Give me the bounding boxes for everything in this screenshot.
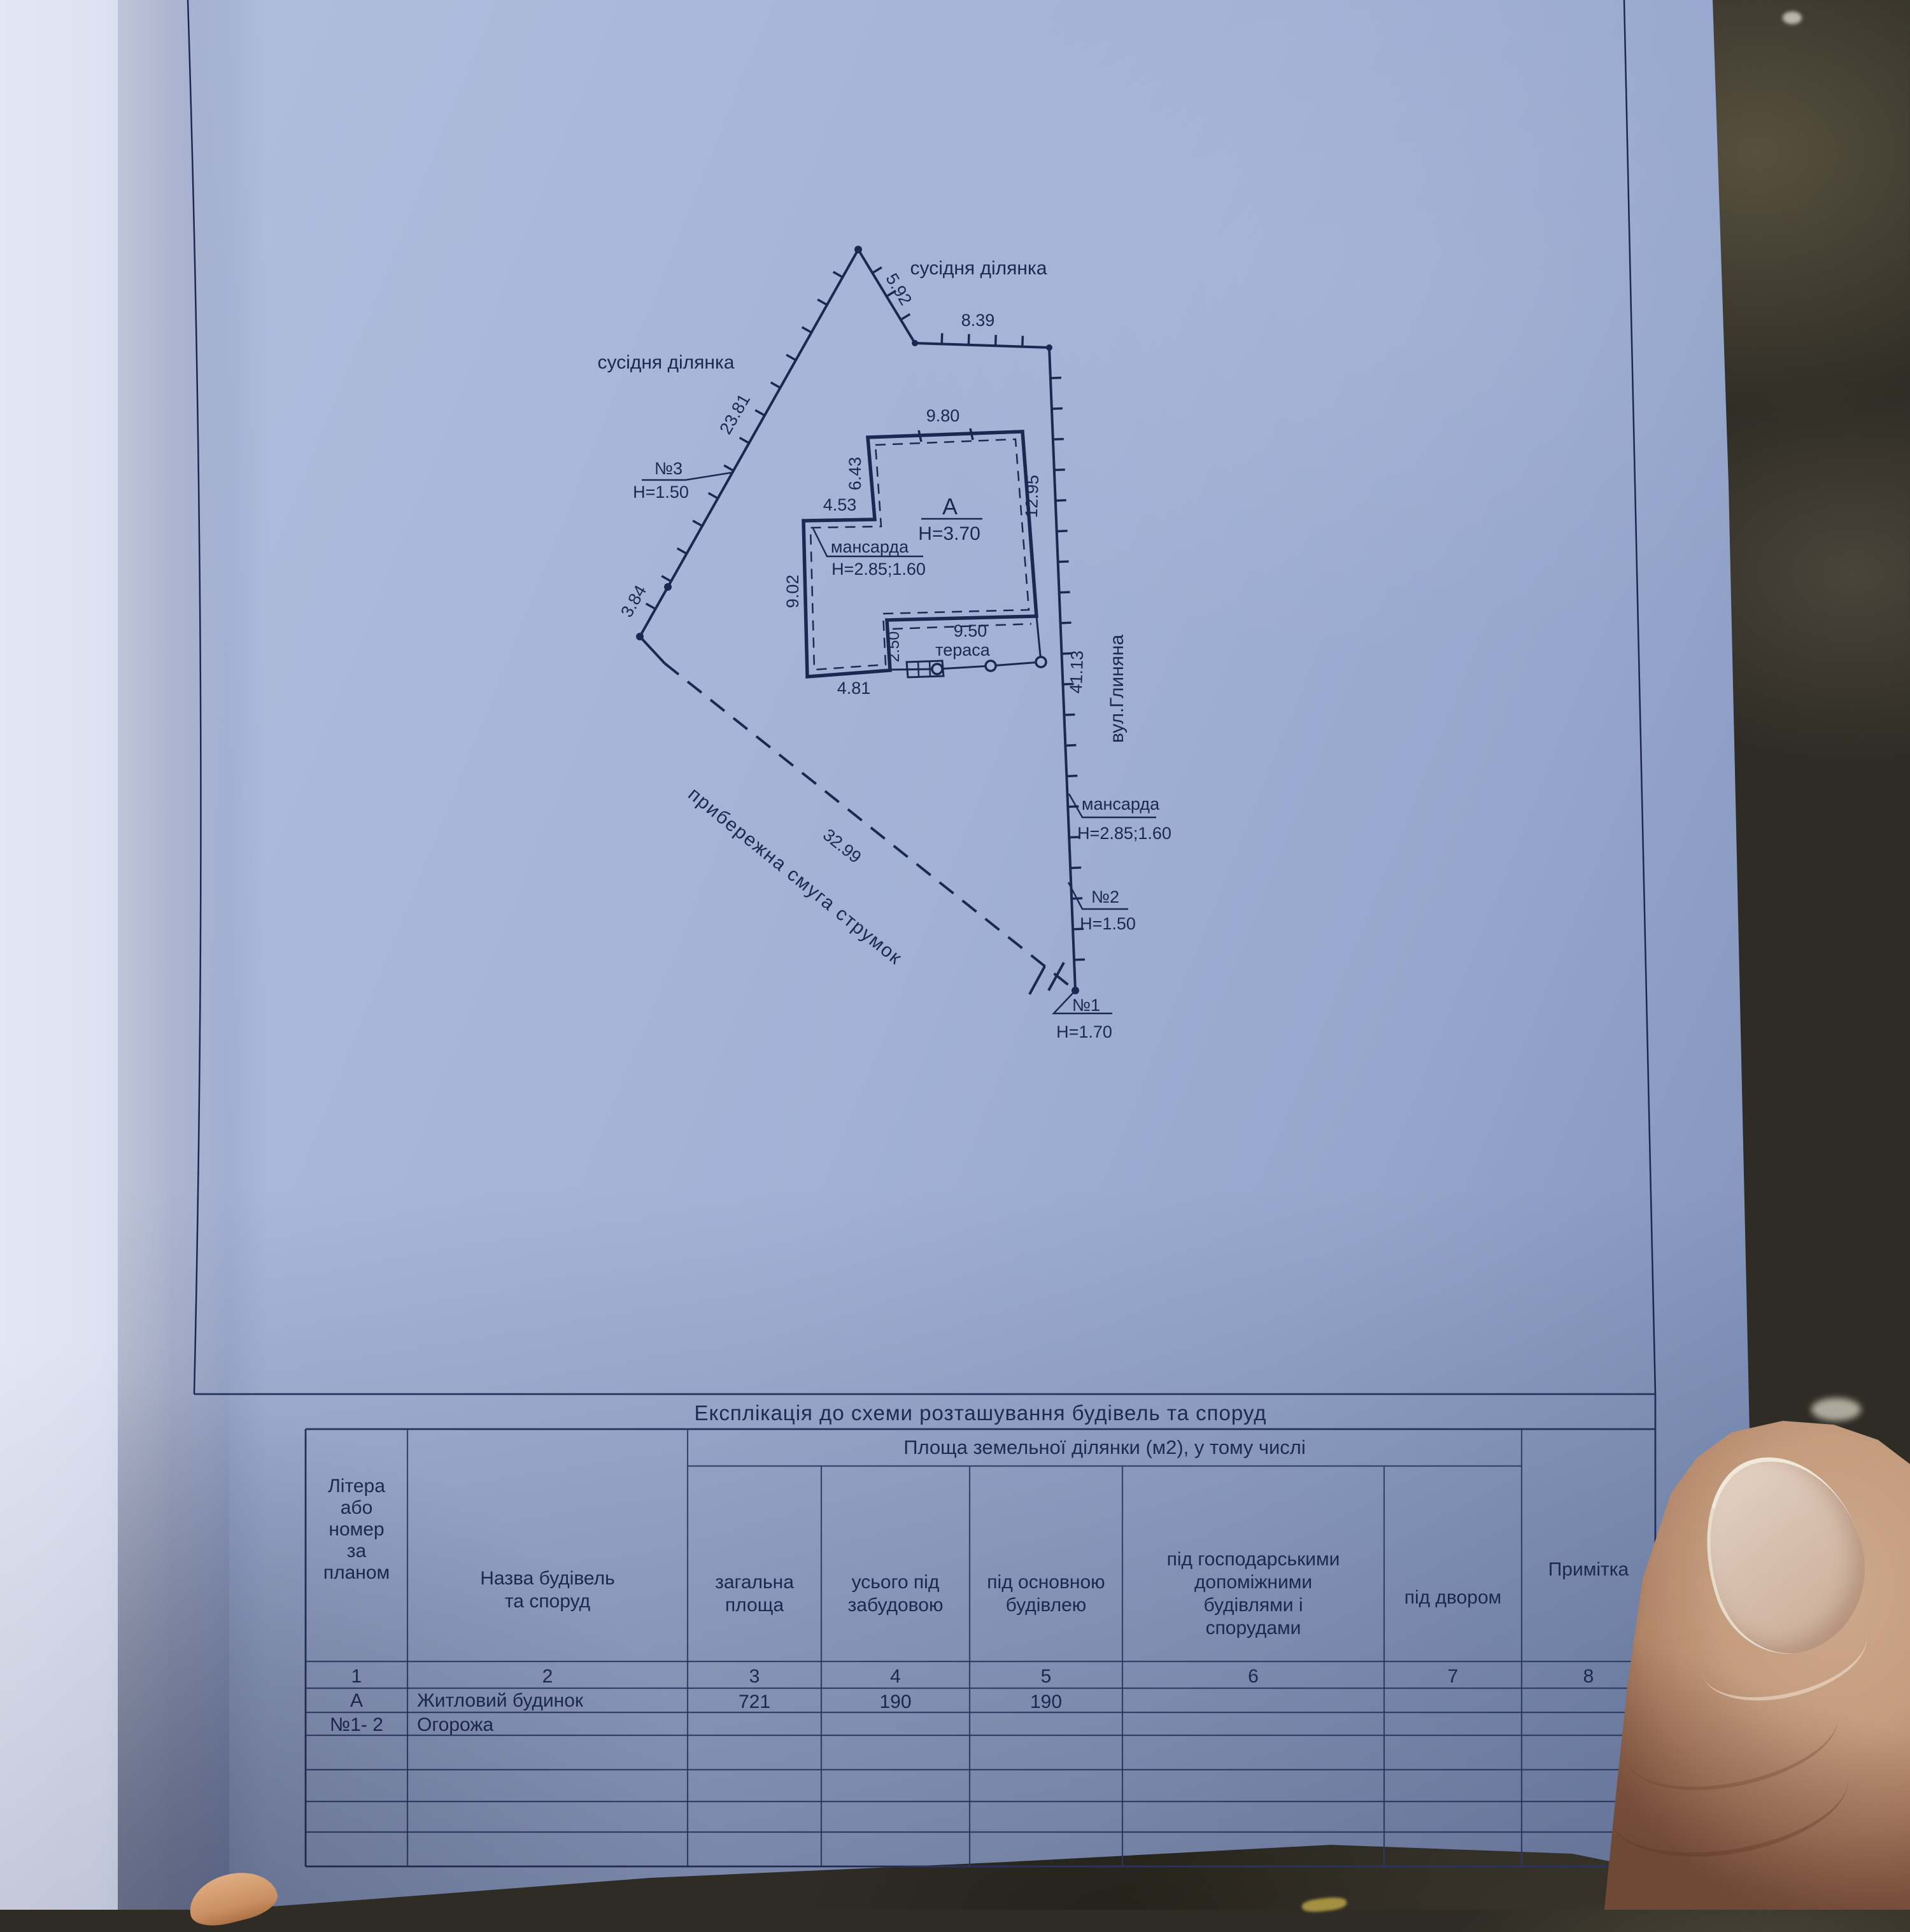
row-a-main: 190 [970,1691,1122,1714]
col-header-usogo: усього під забудовою [821,1571,970,1617]
col-num-4: 4 [821,1665,970,1688]
col-num-3: 3 [688,1665,821,1688]
col-header-prymitka: Примітка [1522,1558,1655,1581]
col-num-7: 7 [1384,1665,1522,1688]
row-a-total: 721 [688,1691,821,1714]
col-num-6: 6 [1122,1665,1384,1688]
photo-of-site-plan-document: { "plan": { "labels": { "neighbor_top": … [0,0,1910,1910]
table-title: Експлікація до схеми розташування будіве… [306,1402,1655,1425]
col-header-nazva: Назва будівель та споруд [407,1567,688,1613]
col-header-osnovnoyu: під основною будівлею [970,1571,1122,1617]
col-header-zagalna: загальна площа [688,1571,821,1617]
col-num-5: 5 [970,1665,1122,1688]
col-num-2: 2 [407,1665,688,1688]
table-area-header: Площа земельної ділянки (м2), у тому чис… [688,1436,1522,1459]
row-a-built: 190 [821,1691,970,1714]
row-a-litera: А [306,1689,407,1712]
col-header-dvorom: під двором [1384,1586,1522,1609]
col-num-1: 1 [306,1665,407,1688]
col-header-gospodarskymy: під господарськими допоміжними будівлями… [1122,1548,1384,1640]
row-a-name: Житловий будинок [417,1689,583,1712]
row-fence-litera: №1- 2 [306,1714,407,1737]
row-fence-name: Огорожа [417,1714,493,1737]
explication-table: Експлікація до схеми розташування будіве… [0,0,1910,1910]
col-header-litera: Літера або номер за планом [306,1476,407,1584]
background-highlight [1811,1398,1861,1421]
